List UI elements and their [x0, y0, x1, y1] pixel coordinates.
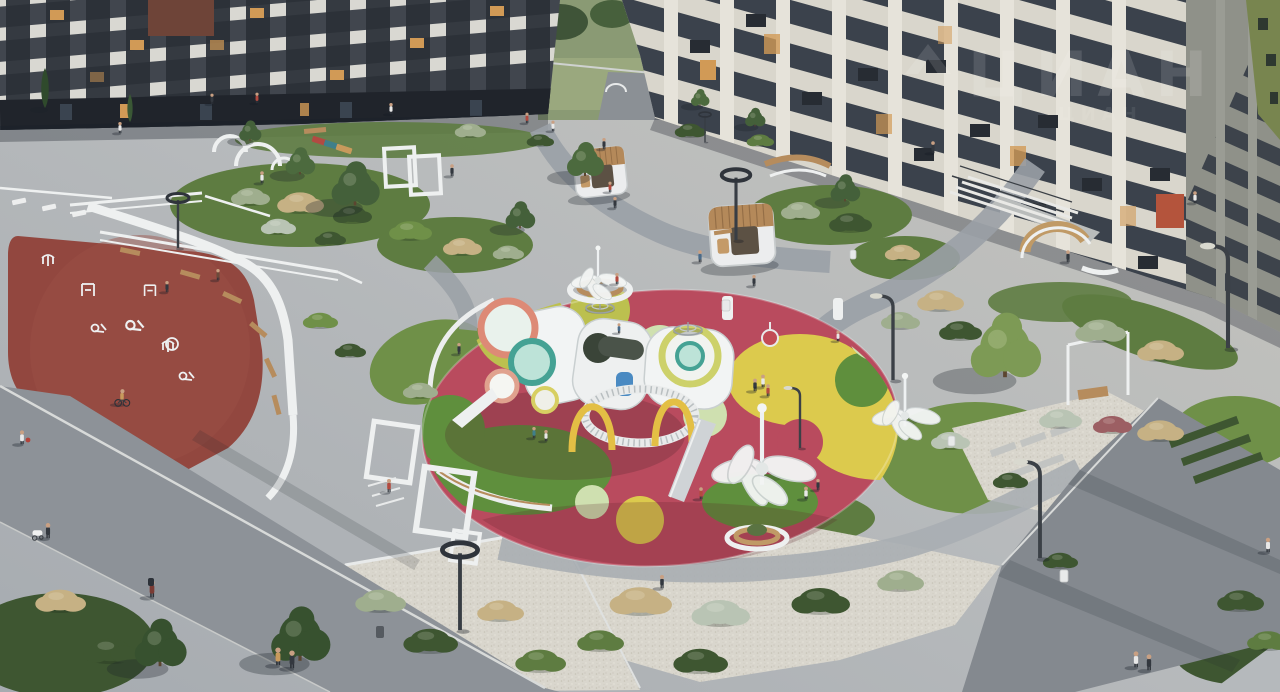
render-scene: ЦИАН ЦИАН [0, 0, 1280, 692]
courtyard-render: ЦИАН ЦИАН [0, 0, 1280, 692]
brick-wall-section [148, 0, 214, 36]
watermark-text: ЦИАН [968, 38, 1217, 111]
kiosk-pillar [833, 298, 843, 320]
watermark-text-small: ЦИАН [1058, 104, 1143, 125]
